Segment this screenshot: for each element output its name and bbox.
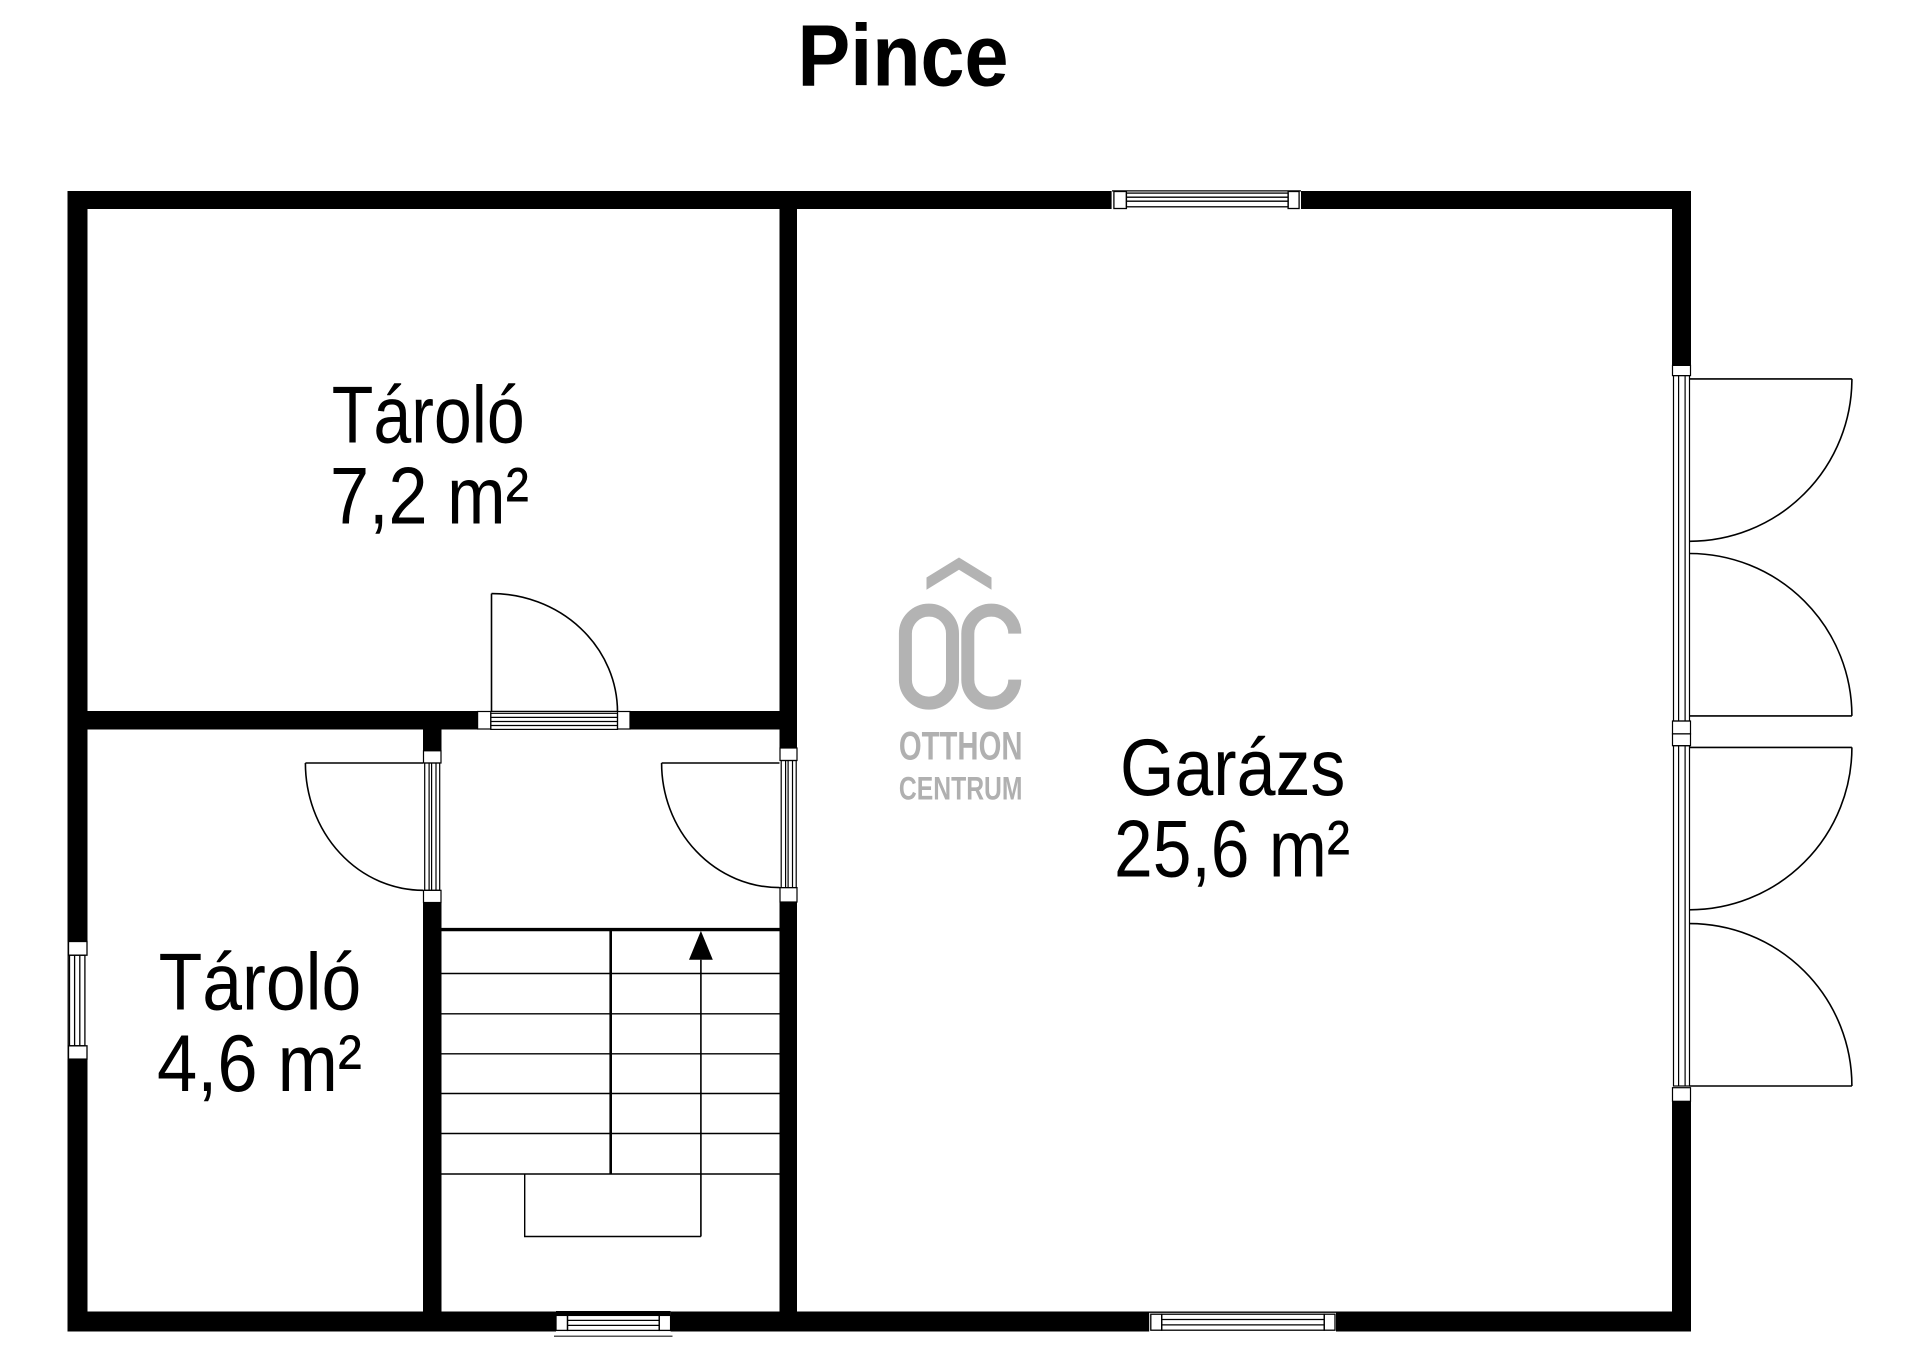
svg-text:CENTRUM: CENTRUM — [899, 769, 1023, 806]
svg-text:4,6 m²: 4,6 m² — [157, 1019, 362, 1109]
svg-text:7,2 m²: 7,2 m² — [330, 452, 529, 542]
svg-text:Garázs: Garázs — [1120, 723, 1345, 813]
svg-text:OTTHON: OTTHON — [899, 724, 1023, 768]
svg-text:Tároló: Tároló — [332, 371, 525, 461]
svg-text:Pince: Pince — [798, 7, 1009, 104]
svg-text:Tároló: Tároló — [159, 938, 362, 1028]
svg-text:25,6 m²: 25,6 m² — [1114, 804, 1350, 894]
